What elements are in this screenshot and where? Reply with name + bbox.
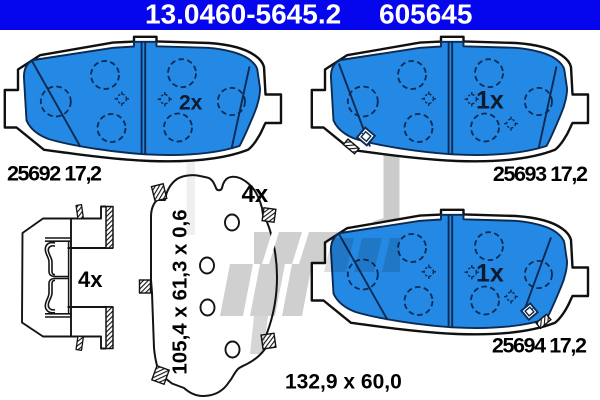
svg-text:13.0460-5645.2: 13.0460-5645.2 [145,0,341,30]
svg-text:1x: 1x [476,86,504,114]
svg-text:25692 17,2: 25692 17,2 [7,162,102,186]
svg-text:4x: 4x [78,267,103,292]
svg-text:25693 17,2: 25693 17,2 [493,162,588,186]
svg-text:25694 17,2: 25694 17,2 [492,334,587,358]
svg-text:105,4 x 61,3 x 0,6: 105,4 x 61,3 x 0,6 [169,209,192,374]
svg-text:605645: 605645 [379,0,472,30]
svg-text:4x: 4x [242,181,269,208]
svg-text:2x: 2x [179,91,203,114]
svg-text:1x: 1x [476,259,504,287]
svg-text:132,9 x 60,0: 132,9 x 60,0 [285,371,402,394]
